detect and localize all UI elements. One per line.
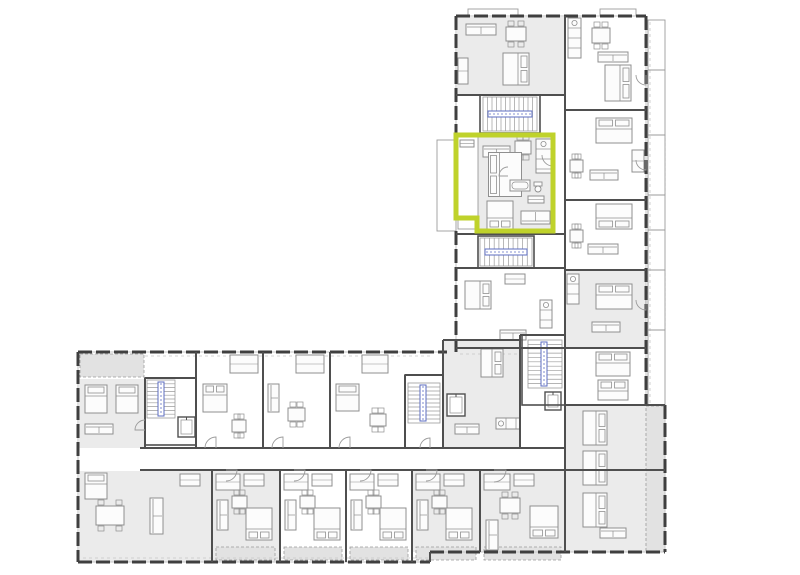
table-furniture: [232, 414, 246, 438]
box-furniture: [444, 474, 464, 486]
sofa-furniture: [85, 424, 113, 434]
room: [496, 418, 520, 429]
sofa-furniture: [351, 500, 362, 530]
room: [314, 508, 340, 540]
sofa-furniture: [417, 500, 428, 530]
bed-furniture: [503, 53, 529, 85]
room: [246, 508, 272, 540]
bed-furniture: [336, 384, 359, 411]
room: [232, 496, 247, 508]
room: [290, 402, 296, 407]
box-furniture: [244, 474, 264, 486]
sofa-furniture: [592, 322, 620, 332]
sofa-furniture: [217, 500, 228, 530]
bed-furniture: [481, 349, 503, 377]
box-furniture: [416, 474, 440, 490]
room: [378, 427, 384, 432]
room: [503, 53, 529, 85]
bed-furniture: [465, 281, 491, 309]
counter-furniture: [540, 300, 552, 328]
room: [506, 27, 526, 41]
box-furniture: [460, 140, 474, 147]
bed-furniture: [583, 411, 607, 445]
room: [372, 427, 378, 432]
table-furniture: [570, 224, 583, 248]
wc-furniture: [534, 182, 542, 192]
bed-furniture: [116, 385, 138, 413]
room: [567, 274, 579, 304]
box-furniture: [378, 474, 398, 486]
box-furniture: [296, 355, 324, 373]
bed-furniture: [605, 65, 631, 101]
sofa-furniture: [150, 498, 163, 534]
box-furniture: [632, 150, 644, 172]
sofa-furniture: [486, 520, 498, 550]
room: [297, 422, 303, 427]
stairwell: [147, 380, 175, 418]
counter-furniture: [567, 274, 579, 304]
floor-plan-svg: [0, 0, 800, 575]
room: [300, 496, 315, 508]
bed-furniture: [380, 508, 406, 540]
sofa-furniture: [600, 528, 626, 538]
stairwell: [483, 97, 537, 131]
room: [594, 44, 600, 49]
room: [583, 493, 607, 527]
terrace: [646, 406, 665, 552]
box-furniture: [284, 474, 308, 490]
room: [297, 402, 303, 407]
table-furniture: [366, 490, 381, 514]
room: [432, 496, 447, 508]
bed-furniture: [314, 508, 340, 540]
room: [370, 414, 386, 426]
room: [487, 201, 513, 229]
room: [446, 508, 472, 540]
bed-furniture: [583, 493, 607, 527]
room: [234, 414, 240, 419]
room: [596, 284, 632, 309]
sofa-furniture: [285, 500, 296, 530]
counter-furniture: [536, 139, 551, 173]
room: [96, 506, 124, 525]
sofa-furniture: [455, 424, 479, 434]
bed-furniture: [598, 380, 628, 400]
box-furniture: [180, 474, 200, 486]
floor-plan: [0, 0, 800, 575]
bed-furniture: [246, 508, 272, 540]
room: [583, 411, 607, 445]
room: [570, 160, 583, 172]
box-furniture: [458, 58, 468, 84]
tub-furniture: [510, 180, 530, 191]
bed-furniture: [203, 384, 227, 412]
elevator: [178, 417, 195, 437]
box-furniture: [514, 474, 534, 486]
room: [234, 433, 240, 438]
box-furniture: [528, 196, 544, 203]
room: [540, 300, 552, 328]
elevator: [545, 392, 561, 410]
room: [465, 281, 491, 309]
box-furniture: [350, 474, 374, 490]
door-swing: [205, 437, 216, 448]
door-swing: [272, 437, 283, 448]
room: [290, 422, 296, 427]
balcony: [437, 140, 456, 231]
room: [203, 384, 227, 412]
bed-furniture: [596, 118, 632, 143]
bed-furniture: [530, 506, 558, 538]
room: [596, 118, 632, 143]
counter-furniture: [568, 18, 581, 58]
elevator: [447, 394, 465, 416]
door-swing: [339, 437, 350, 448]
bed-furniture: [446, 508, 472, 540]
table-furniture: [370, 408, 386, 432]
room: [570, 230, 583, 242]
room: [602, 22, 608, 27]
room: [500, 498, 520, 513]
room: [534, 182, 542, 186]
sofa-furniture: [590, 170, 618, 180]
box-furniture: [362, 355, 388, 373]
room: [232, 420, 246, 432]
box-furniture: [312, 474, 332, 486]
box-furniture: [230, 355, 258, 373]
table-furniture: [288, 402, 305, 427]
room: [378, 408, 384, 413]
room: [605, 65, 631, 101]
sofa-furniture: [521, 211, 550, 224]
room: [602, 44, 608, 49]
room: [536, 139, 551, 173]
sofa-furniture: [466, 24, 496, 35]
room: [530, 506, 558, 538]
room: [336, 384, 359, 411]
stairwell: [408, 383, 440, 423]
bed-furniture: [487, 201, 513, 229]
counter-furniture: [496, 418, 520, 429]
room: [596, 352, 630, 376]
room: [238, 414, 244, 419]
terrace: [80, 354, 144, 377]
room: [380, 508, 406, 540]
table-furniture: [592, 22, 610, 49]
bed-furniture: [85, 473, 107, 499]
balcony: [648, 20, 665, 405]
room: [598, 380, 628, 400]
sofa-furniture: [588, 244, 618, 254]
table-furniture: [300, 490, 315, 514]
room: [592, 28, 610, 43]
room: [372, 408, 378, 413]
room: [583, 451, 607, 485]
table-furniture: [570, 154, 583, 178]
bed-furniture: [596, 204, 632, 229]
stairwell: [480, 238, 532, 266]
bed-furniture: [583, 451, 607, 485]
sofa-furniture: [598, 52, 628, 62]
bed-furniture: [85, 385, 107, 413]
room: [366, 496, 381, 508]
box-furniture: [216, 474, 240, 490]
bed-furniture: [596, 352, 630, 376]
sofa-furniture: [268, 384, 279, 412]
room: [596, 204, 632, 229]
room: [238, 433, 244, 438]
balcony: [458, 137, 478, 229]
room: [594, 22, 600, 27]
bed-furniture: [596, 284, 632, 309]
box-furniture: [505, 274, 525, 284]
room: [288, 408, 305, 421]
door-swing: [420, 438, 430, 448]
